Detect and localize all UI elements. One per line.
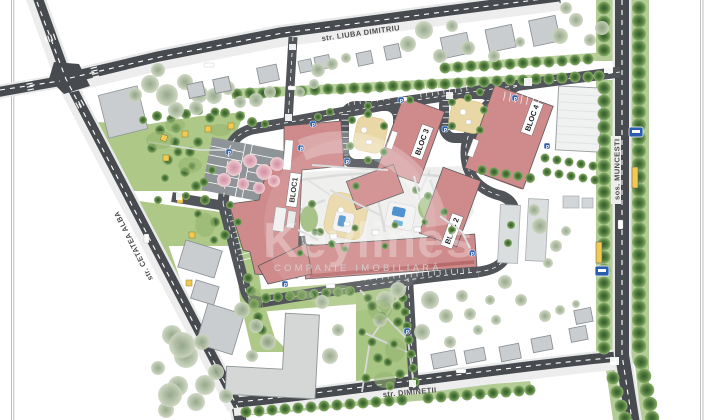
svg-text:COMPANIE IMOBILIARĂ: COMPANIE IMOBILIARĂ (274, 263, 442, 274)
svg-text:sos. MUNCESTI: sos. MUNCESTI (613, 139, 622, 200)
svg-text:Keylines: Keylines (263, 214, 474, 268)
